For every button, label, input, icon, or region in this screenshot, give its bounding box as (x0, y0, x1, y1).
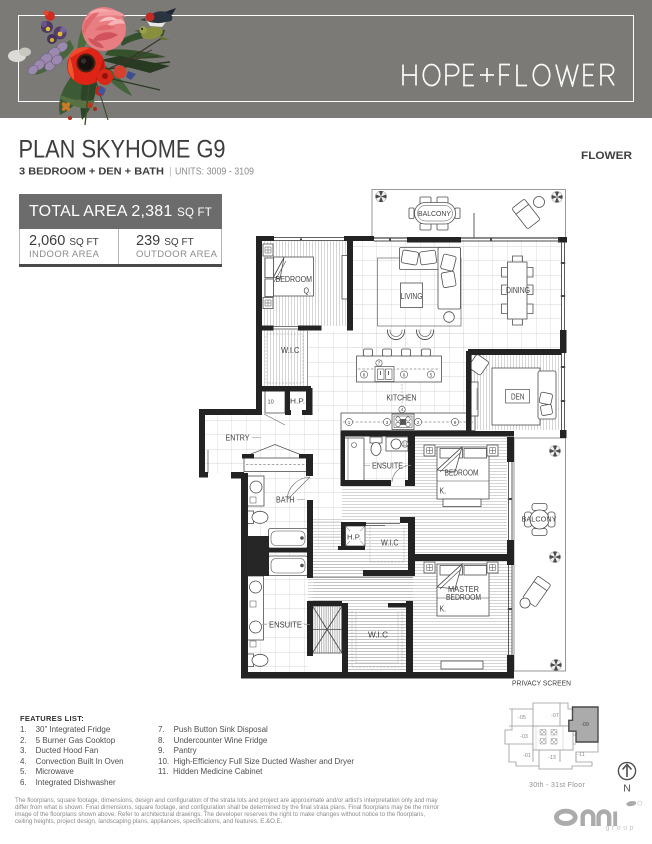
svg-text:BALCONY: BALCONY (418, 209, 451, 218)
svg-text:-05: -05 (518, 715, 526, 721)
svg-text:1: 1 (348, 420, 351, 425)
svg-text:BALCONY: BALCONY (522, 515, 557, 524)
svg-text:BEDROOM: BEDROOM (445, 468, 479, 478)
svg-text:W.I.C: W.I.C (281, 346, 300, 355)
svg-text:7: 7 (378, 361, 381, 366)
svg-text:-13: -13 (548, 755, 556, 761)
svg-text:ENSUITE: ENSUITE (269, 621, 302, 630)
svg-text:3: 3 (386, 420, 389, 425)
svg-text:W.I.C: W.I.C (381, 539, 399, 548)
svg-text:H.P.: H.P. (290, 397, 305, 406)
svg-text:ENSUITE: ENSUITE (372, 462, 403, 471)
svg-text:BATH: BATH (276, 496, 295, 505)
svg-text:BEDROOM: BEDROOM (446, 592, 481, 602)
svg-text:ENTRY: ENTRY (226, 434, 251, 443)
svg-text:-01: -01 (523, 753, 531, 759)
svg-text:K.: K. (440, 487, 447, 496)
svg-text:-11: -11 (577, 752, 584, 758)
svg-text:PRIVACY SCREEN: PRIVACY SCREEN (512, 679, 571, 688)
svg-text:H.P.: H.P. (347, 533, 361, 542)
svg-text:5: 5 (430, 372, 433, 377)
svg-text:4: 4 (401, 407, 404, 412)
svg-text:LIVING: LIVING (401, 291, 423, 301)
svg-text:Q.: Q. (304, 286, 312, 296)
svg-text:-09: -09 (581, 722, 589, 728)
svg-text:W.I.C: W.I.C (368, 631, 388, 640)
svg-text:11: 11 (403, 442, 408, 447)
svg-text:-03: -03 (520, 734, 528, 740)
svg-text:DINING: DINING (506, 285, 530, 295)
svg-text:DEN: DEN (511, 393, 525, 402)
svg-text:9: 9 (454, 420, 457, 425)
svg-text:N: N (623, 783, 631, 795)
svg-text:10: 10 (268, 400, 274, 406)
svg-text:BEDROOM: BEDROOM (276, 274, 313, 284)
svg-text:2: 2 (417, 420, 420, 425)
svg-text:8: 8 (363, 372, 366, 377)
svg-text:K.: K. (440, 605, 447, 614)
svg-text:6: 6 (403, 372, 406, 377)
svg-text:KITCHEN: KITCHEN (387, 394, 417, 403)
svg-text:-07: -07 (551, 713, 559, 719)
